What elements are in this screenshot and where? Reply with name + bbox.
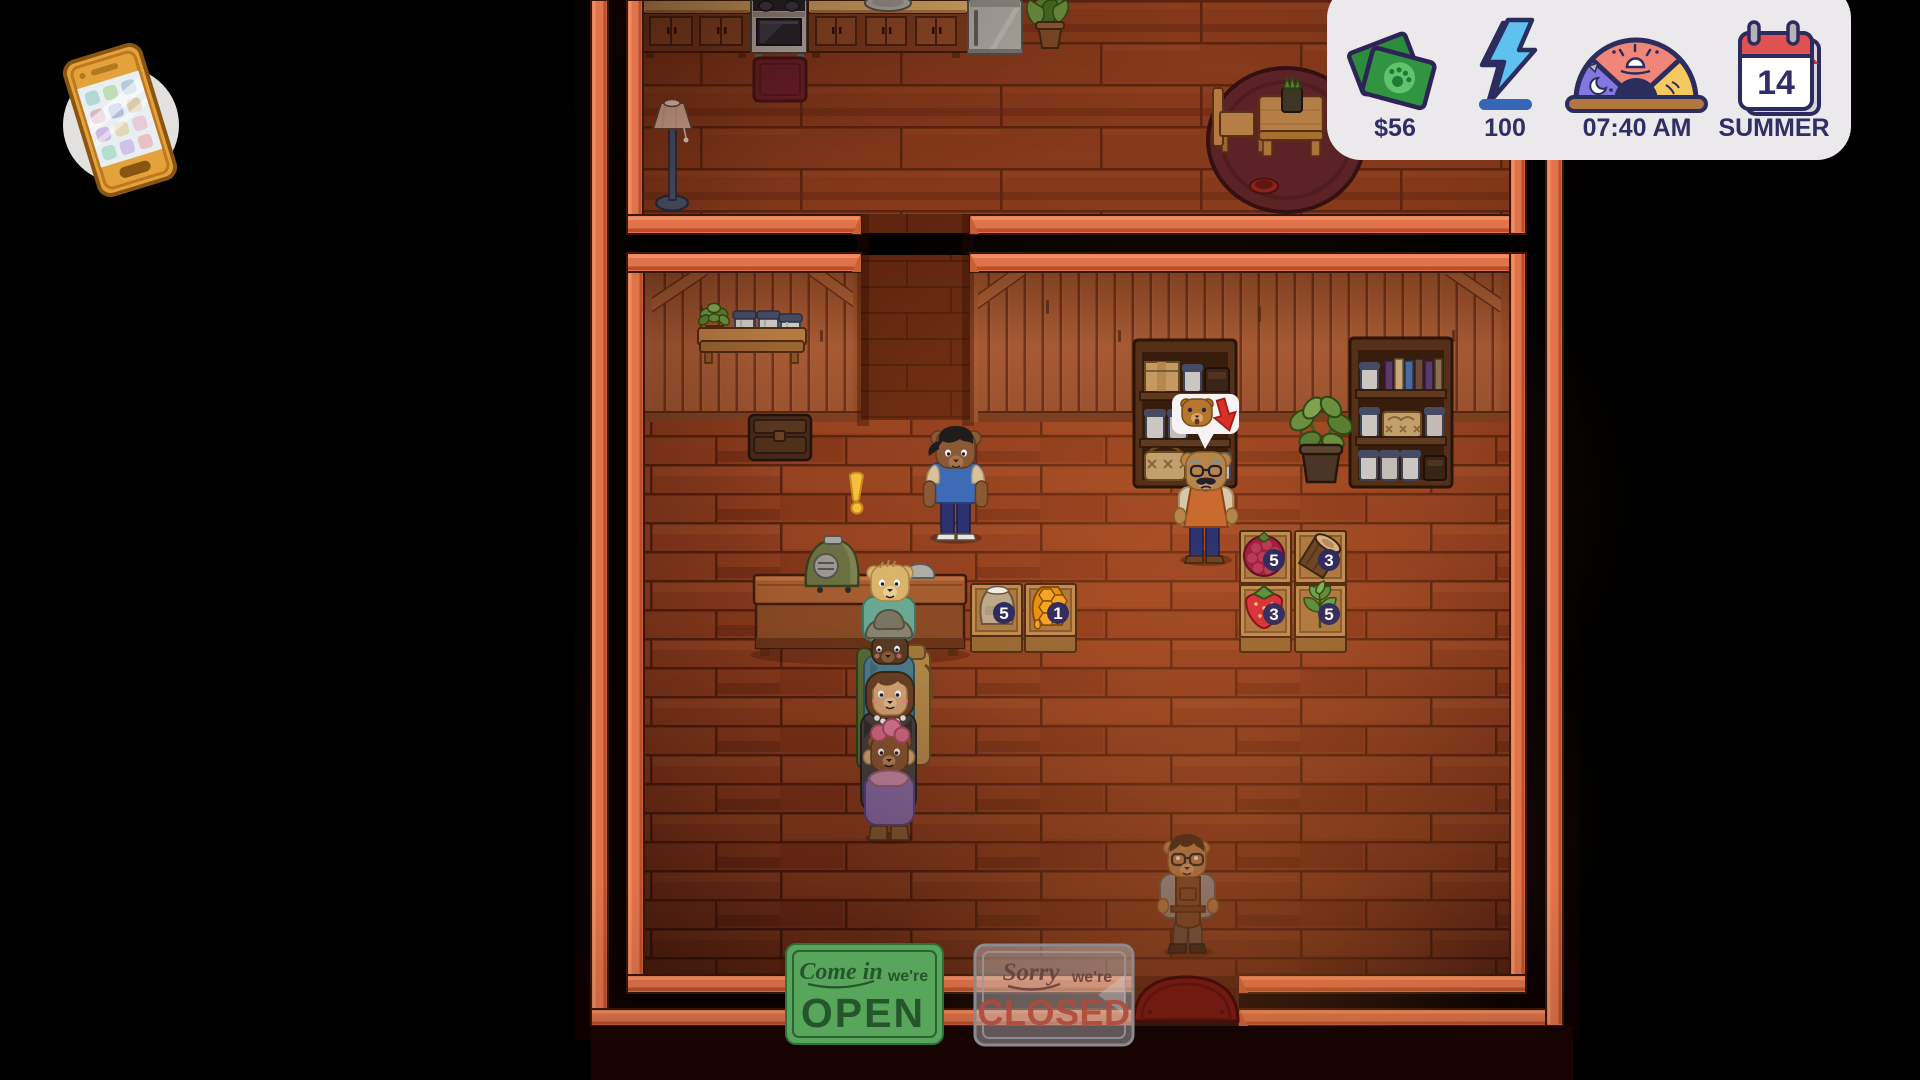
svg-text:07:40 AM: 07:40 AM: [1583, 114, 1692, 142]
svg-text:we're: we're: [887, 968, 928, 985]
svg-text:CLOSED: CLOSED: [977, 992, 1130, 1033]
svg-text:100: 100: [1484, 114, 1526, 142]
svg-text:Sorry: Sorry: [1003, 959, 1061, 986]
svg-text:14: 14: [1757, 64, 1795, 102]
svg-text:OPEN: OPEN: [801, 990, 925, 1036]
svg-text:$56: $56: [1374, 114, 1416, 142]
svg-text:we're: we're: [1071, 969, 1112, 986]
svg-text:SUMMER: SUMMER: [1718, 114, 1829, 142]
